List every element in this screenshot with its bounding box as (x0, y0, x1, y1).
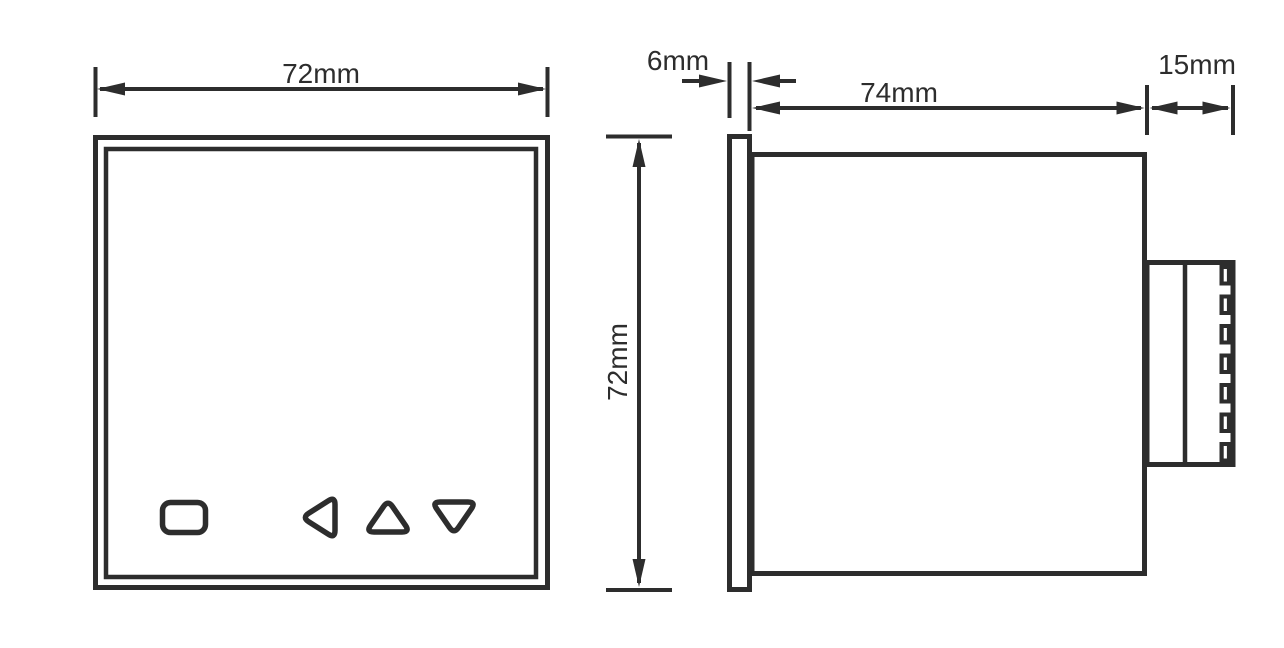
arrowhead-left (1150, 102, 1178, 115)
terminal-screw-slot (1224, 269, 1227, 282)
front-width-dimension: 72mm (96, 58, 548, 117)
arrowhead-down (633, 559, 646, 587)
drawing-canvas: 72mm 72mm 6mm (0, 0, 1284, 648)
side-view (730, 137, 1234, 590)
bezel-depth-dimension-label: 6mm (647, 45, 709, 76)
set-button (163, 503, 206, 533)
front-view (96, 138, 548, 588)
down-arrow-button (435, 502, 473, 531)
terminal-depth-dimension-label: 15mm (1158, 49, 1236, 80)
front-width-dimension-label: 72mm (282, 58, 360, 89)
case-body (752, 155, 1145, 574)
front-height-dimension: 72mm (602, 137, 672, 591)
front-panel-buttons (163, 499, 474, 535)
front-height-dimension-label: 72mm (602, 323, 633, 401)
arrowhead-right (1203, 102, 1231, 115)
front-bezel-plate (730, 137, 750, 590)
body-depth-dimension-label: 74mm (860, 77, 938, 108)
arrowhead-right (1117, 102, 1145, 115)
terminal-screw-slot (1224, 387, 1227, 400)
left-arrow-button (305, 499, 335, 535)
terminal-screw-slot (1224, 328, 1227, 341)
arrowhead-right (518, 83, 546, 96)
terminal-screw-slot (1224, 417, 1227, 430)
dimension-drawing: 72mm 72mm 6mm (0, 0, 1284, 648)
terminal-depth-dimension: 15mm (1147, 49, 1236, 135)
terminal-screws (1220, 265, 1232, 463)
terminal-screw-slot (1224, 446, 1227, 459)
arrowhead-up (633, 139, 646, 167)
arrowhead-pointing-left (752, 75, 780, 88)
terminal-screw-slot (1224, 358, 1227, 371)
terminal-screw-slot (1224, 299, 1227, 312)
up-arrow-button (369, 503, 407, 532)
bezel-depth-dimension: 6mm (647, 45, 796, 131)
body-depth-dimension: 74mm (752, 77, 1145, 115)
arrowhead-left (97, 83, 125, 96)
arrowhead-left (752, 102, 780, 115)
arrowhead-pointing-right (699, 75, 727, 88)
